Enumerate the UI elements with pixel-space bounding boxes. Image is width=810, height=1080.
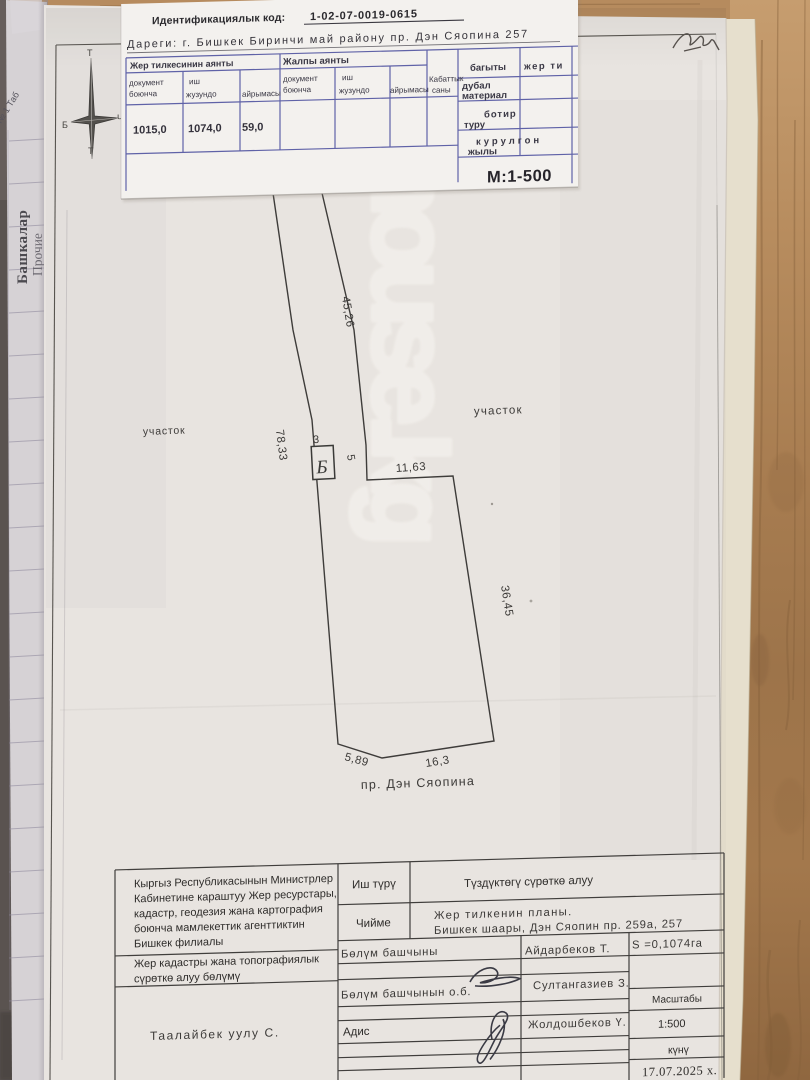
svg-text:жер ти: жер ти	[523, 60, 564, 72]
svg-text:айрымасы: айрымасы	[390, 85, 429, 95]
svg-text:боюнча: боюнча	[129, 89, 158, 99]
svg-text:иш: иш	[342, 73, 353, 82]
svg-text:туру: туру	[464, 119, 486, 131]
svg-text:1074,0: 1074,0	[188, 122, 222, 135]
svg-text:Б: Б	[315, 457, 328, 479]
svg-text:документ: документ	[129, 78, 164, 88]
svg-text:S =0,1074га: S =0,1074га	[632, 938, 703, 952]
svg-text:багыты: багыты	[470, 62, 506, 74]
svg-text:59,0: 59,0	[242, 121, 263, 134]
svg-text:Масштабы: Масштабы	[652, 993, 702, 1006]
svg-text:Т: Т	[87, 48, 93, 58]
svg-text:боюнча: боюнча	[283, 85, 312, 95]
svg-text:М:1-500: М:1-500	[487, 167, 552, 187]
svg-text:жылы: жылы	[467, 146, 497, 158]
svg-text:жузундо: жузундо	[186, 90, 217, 100]
svg-text:1:500: 1:500	[658, 1018, 686, 1031]
svg-text:саны: саны	[432, 85, 451, 94]
svg-text:документ: документ	[283, 74, 318, 84]
svg-text:1015,0: 1015,0	[133, 124, 167, 137]
svg-text:материал: материал	[462, 90, 507, 102]
svg-text:Кабаттык: Кабаттык	[429, 74, 464, 84]
svg-text:айрымасы: айрымасы	[242, 89, 281, 99]
svg-text:Т: Т	[88, 146, 94, 156]
svg-text:3: 3	[313, 434, 320, 446]
svg-text:Айдарбеков Т.: Айдарбеков Т.	[525, 943, 610, 957]
svg-text:17.07.2025 х.: 17.07.2025 х.	[642, 1063, 717, 1079]
svg-text:Адис: Адис	[343, 1026, 370, 1039]
svg-text:Жалпы аянты: Жалпы аянты	[282, 55, 349, 68]
svg-text:жузундо: жузундо	[339, 86, 370, 96]
svg-text:Башкалар: Башкалар	[15, 210, 31, 284]
svg-text:участок: участок	[143, 425, 186, 438]
svg-text:Бишкек филиалы: Бишкек филиалы	[134, 936, 223, 950]
svg-text:ботир: ботир	[484, 109, 517, 121]
svg-text:иш: иш	[189, 77, 200, 86]
svg-text:участок: участок	[474, 404, 523, 418]
svg-text:Б: Б	[62, 120, 68, 130]
svg-text:Чийме: Чийме	[356, 917, 391, 930]
svg-text:11,63: 11,63	[395, 461, 426, 475]
svg-text:Иш түрү: Иш түрү	[352, 878, 396, 891]
svg-text:күнү: күнү	[668, 1044, 690, 1057]
